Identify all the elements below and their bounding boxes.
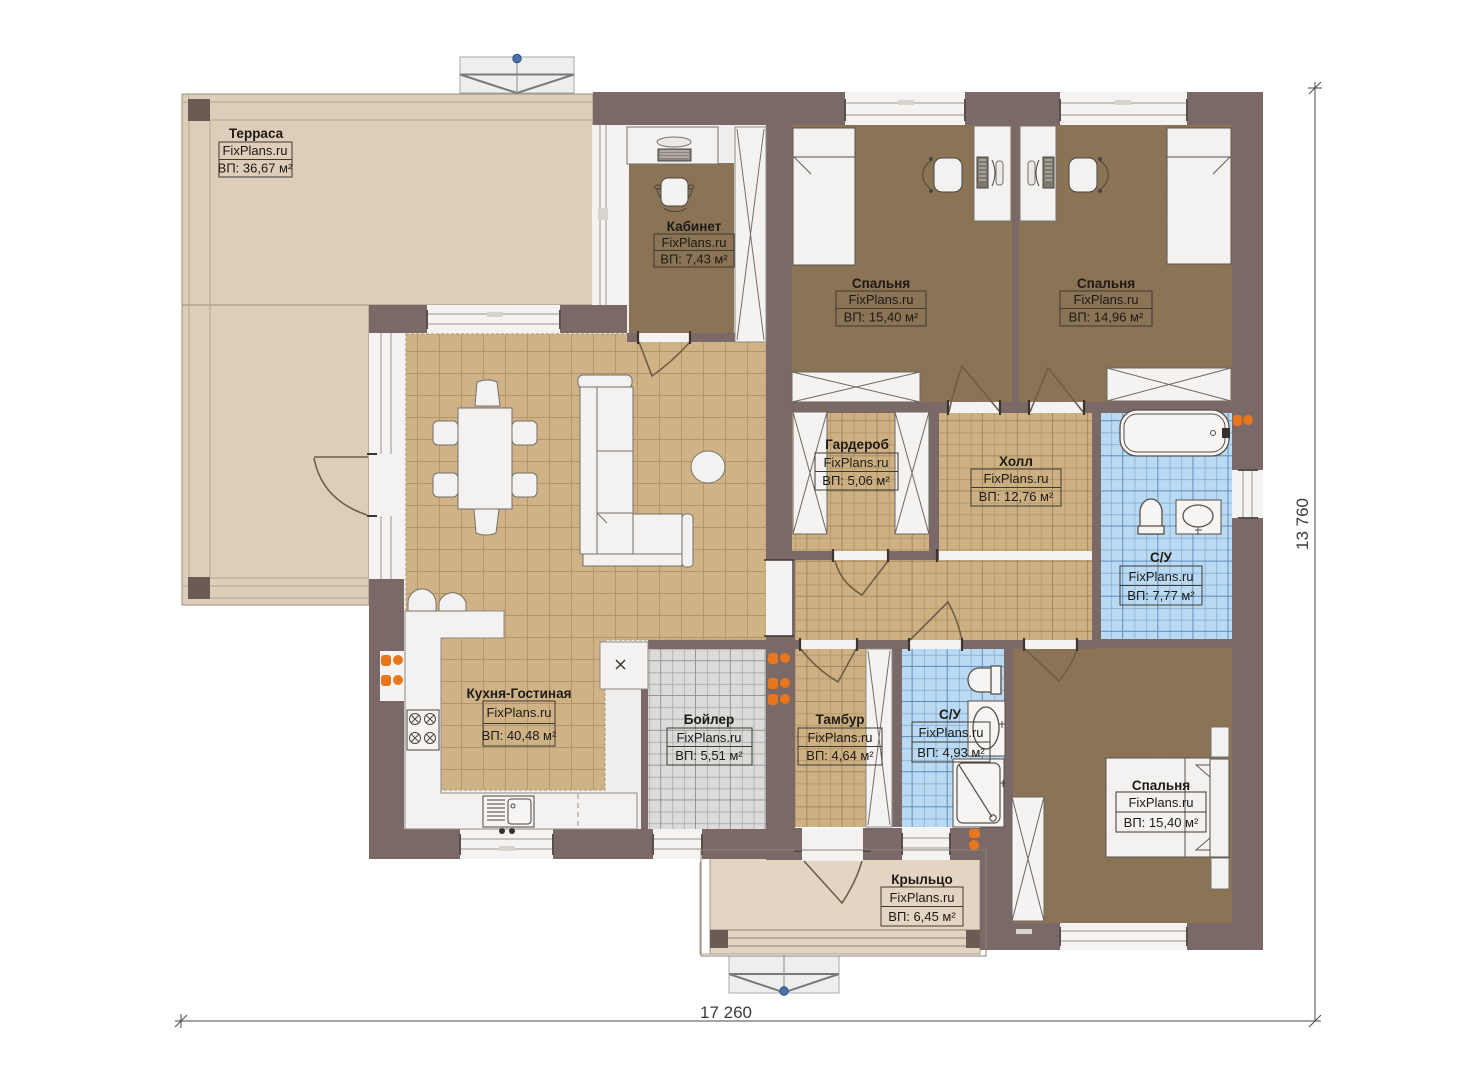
svg-text:FixPlans.ru: FixPlans.ru [918, 725, 983, 740]
svg-text:Бойлер: Бойлер [684, 712, 734, 727]
svg-text:FixPlans.ru: FixPlans.ru [1128, 569, 1193, 584]
svg-text:Спальня: Спальня [1132, 778, 1190, 793]
svg-text:FixPlans.ru: FixPlans.ru [889, 890, 954, 905]
svg-text:Кухня-Гостиная: Кухня-Гостиная [467, 686, 572, 701]
svg-text:ВП: 7,43 м²: ВП: 7,43 м² [660, 252, 728, 267]
svg-text:ВП: 4,64 м²: ВП: 4,64 м² [806, 748, 874, 763]
svg-text:FixPlans.ru: FixPlans.ru [848, 292, 913, 307]
svg-text:Холл: Холл [999, 454, 1033, 469]
svg-text:ВП: 6,45 м²: ВП: 6,45 м² [888, 909, 956, 924]
svg-text:FixPlans.ru: FixPlans.ru [661, 235, 726, 250]
svg-text:ВП: 15,40 м²: ВП: 15,40 м² [844, 310, 919, 325]
svg-text:Крыльцо: Крыльцо [891, 872, 952, 887]
svg-text:ВП: 14,96 м²: ВП: 14,96 м² [1069, 310, 1144, 325]
svg-text:ВП: 4,93 м²: ВП: 4,93 м² [917, 745, 985, 760]
svg-text:FixPlans.ru: FixPlans.ru [823, 455, 888, 470]
svg-text:FixPlans.ru: FixPlans.ru [1073, 292, 1138, 307]
svg-text:Тамбур: Тамбур [816, 712, 865, 727]
svg-text:ВП: 12,76 м²: ВП: 12,76 м² [979, 489, 1054, 504]
svg-text:С/У: С/У [939, 707, 962, 722]
svg-text:Спальня: Спальня [852, 276, 910, 291]
svg-text:Гардероб: Гардероб [825, 437, 889, 452]
svg-text:ВП: 15,40 м²: ВП: 15,40 м² [1124, 815, 1199, 830]
svg-text:ВП: 7,77 м²: ВП: 7,77 м² [1127, 588, 1195, 603]
svg-text:FixPlans.ru: FixPlans.ru [222, 143, 287, 158]
svg-text:FixPlans.ru: FixPlans.ru [983, 471, 1048, 486]
svg-text:17 260: 17 260 [700, 1003, 752, 1022]
svg-text:ВП: 40,48 м²: ВП: 40,48 м² [482, 728, 557, 743]
svg-text:FixPlans.ru: FixPlans.ru [676, 730, 741, 745]
svg-text:FixPlans.ru: FixPlans.ru [807, 730, 872, 745]
svg-text:ВП: 5,51 м²: ВП: 5,51 м² [675, 748, 743, 763]
svg-text:ВП: 5,06 м²: ВП: 5,06 м² [822, 473, 890, 488]
svg-text:FixPlans.ru: FixPlans.ru [486, 705, 551, 720]
svg-text:С/У: С/У [1150, 550, 1173, 565]
svg-text:FixPlans.ru: FixPlans.ru [1128, 795, 1193, 810]
svg-text:Кабинет: Кабинет [667, 219, 722, 234]
svg-text:Терраса: Терраса [229, 126, 284, 141]
svg-text:Спальня: Спальня [1077, 276, 1135, 291]
svg-text:ВП: 36,67 м²: ВП: 36,67 м² [218, 161, 293, 176]
svg-text:13 760: 13 760 [1293, 498, 1312, 550]
